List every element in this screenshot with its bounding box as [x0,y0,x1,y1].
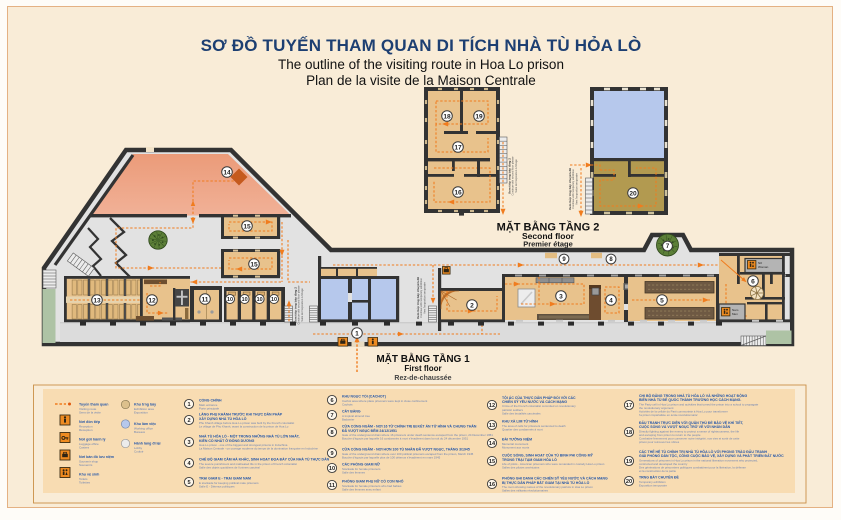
svg-text:Hành lang đi lại: Hành lang đi lại [134,442,161,446]
svg-text:Xem tiếp trng bày chuyên đề: Xem tiếp trng bày chuyên đề [416,277,420,319]
svg-text:Salle des femmes avec enfant: Salle des femmes avec enfant [342,488,381,492]
svg-text:2: 2 [470,302,474,309]
svg-text:16: 16 [489,482,495,488]
svg-text:The outline of the visiting ro: The outline of the visiting route in Hoa… [278,57,564,72]
svg-text:12: 12 [148,297,156,304]
svg-text:Nơi gửi hành lý: Nơi gửi hành lý [79,438,106,442]
svg-text:Rez-de-chaussée: Rez-de-chaussée [394,375,451,382]
svg-text:19: 19 [475,113,483,120]
svg-text:Tuyến tham quan: Tuyến tham quan [79,403,108,407]
svg-text:'la prison impérialiste en éco: 'la prison impérialiste en école révolut… [639,413,698,417]
svg-text:SƠ ĐỒ TUYẾN THAM QUAN DI TÍCH: SƠ ĐỒ TUYẾN THAM QUAN DI TÍCH NHÀ TÙ HỎA… [201,36,642,55]
svg-text:17: 17 [626,403,632,409]
svg-text:La Maison Centrale - un ouvrag: La Maison Centrale - un ouvrage moderne … [199,447,318,451]
svg-text:Quartier des condamnés à mort: Quartier des condamnés à mort [502,428,543,432]
svg-text:17: 17 [454,144,462,151]
svg-text:4: 4 [609,297,613,304]
svg-text:Badamier: Badamier [342,418,354,422]
svg-text:3: 3 [559,293,563,300]
svg-text:Salles des pilotes américains: Salles des pilotes américains [502,466,540,470]
svg-text:13: 13 [489,423,495,429]
svg-text:Salle des brutalités carcérale: Salle des brutalités carcérales [502,411,541,415]
svg-text:Toilettes: Toilettes [79,481,91,485]
svg-text:Cachots: Cachots [342,403,353,407]
svg-text:Bureaux: Bureaux [134,430,146,434]
svg-text:15: 15 [243,223,251,230]
svg-text:Nơi bán đồ lưu niệm: Nơi bán đồ lưu niệm [79,455,114,459]
svg-text:First floor: First floor [404,364,441,373]
svg-text:et la construction de la patri: et la construction de la patrie [639,469,676,473]
svg-text:Salle des femmes: Salle des femmes [342,471,366,475]
svg-text:Sens de la visite: Sens de la visite [79,411,101,415]
svg-text:Salles des militants révolutio: Salles des militants révolutionnaires [502,489,549,493]
svg-text:Suite de l'exposition à l'étag: Suite de l'exposition à l'étage [300,288,304,322]
svg-text:Couloir: Couloir [134,450,144,454]
svg-text:9: 9 [330,451,333,457]
svg-text:Exposition temporaire: Exposition temporaire [639,484,667,488]
svg-text:Bouche d'égouts par laquelle p: Bouche d'égouts par laquelle plus de 100… [342,456,441,460]
svg-text:10: 10 [257,297,263,303]
svg-text:10: 10 [242,297,248,303]
svg-text:Bouche d'égouts par laquelle 1: Bouche d'égouts par laquelle 16 condamné… [342,437,469,441]
svg-text:Réception: Réception [79,428,93,432]
svg-text:6: 6 [751,278,755,285]
svg-text:Monument aux morts: Monument aux morts [502,446,530,450]
svg-text:Le village de Phu Khanh, avant: Le village de Phu Khanh, avant la constr… [199,425,289,429]
svg-text:18: 18 [626,430,632,436]
svg-text:Premier étage: Premier étage [523,240,573,249]
svg-text:14: 14 [223,169,231,176]
svg-text:10: 10 [329,466,335,472]
svg-text:Khu vệ sinh: Khu vệ sinh [79,473,99,477]
svg-text:Cachot area where place prison: Cachot area where place prisoners were k… [342,399,428,403]
svg-text:2: 2 [187,418,190,424]
svg-text:15: 15 [250,261,258,268]
svg-text:Men: Men [732,312,738,316]
svg-text:Xem tiếp trng bày tầng 2: Xem tiếp trng bày tầng 2 [507,158,511,194]
svg-text:3: 3 [187,440,190,446]
svg-text:Xem tiếp trng bày chuyên đề: Xem tiếp trng bày chuyên đề [568,168,572,210]
svg-text:20: 20 [626,479,632,485]
svg-text:Khu làm việc: Khu làm việc [134,422,156,426]
svg-text:Souvenirs: Souvenirs [79,463,93,467]
svg-text:1: 1 [187,402,190,408]
svg-text:16: 16 [454,189,462,196]
svg-text:13: 13 [93,297,101,304]
svg-text:12: 12 [489,403,495,409]
svg-text:15: 15 [489,459,495,465]
svg-text:5: 5 [660,297,664,304]
svg-text:Exposition: Exposition [134,411,148,415]
svg-text:Xem tiếp trng bày tầng 2: Xem tiếp trng bày tầng 2 [293,287,297,323]
svg-text:Salle E - Détenus politiques: Salle E - Détenus politiques [199,485,235,489]
svg-text:20: 20 [629,190,637,197]
svg-text:Suite de l'exposition à l'étag: Suite de l'exposition à l'étage [514,159,518,193]
svg-text:Vers l'exposition temporaire: Vers l'exposition temporaire [422,282,426,314]
svg-text:11: 11 [202,296,209,303]
svg-text:Porte principale: Porte principale [199,407,219,411]
svg-text:5: 5 [187,480,190,486]
svg-text:6: 6 [330,398,333,404]
svg-text:Vers l'exposition temporaire: Vers l'exposition temporaire [574,173,578,205]
svg-text:Khu trng bày: Khu trng bày [134,403,156,407]
svg-text:Plan de la visite de la Maison: Plan de la visite de la Maison Centrale [306,73,536,88]
svg-text:14: 14 [489,441,496,447]
svg-text:1: 1 [355,330,359,337]
svg-text:10: 10 [271,297,277,303]
svg-text:Nơi đón tiếp: Nơi đón tiếp [79,420,101,424]
svg-text:18: 18 [443,113,451,120]
svg-text:Casiers: Casiers [79,446,90,450]
svg-text:Woman: Woman [758,265,769,269]
svg-text:Salle des objets quotidiens de: Salle des objets quotidiens de l'univers… [199,466,260,470]
svg-text:7: 7 [330,413,333,419]
svg-text:10: 10 [227,297,233,303]
svg-text:8: 8 [330,430,333,436]
svg-text:19: 19 [626,459,632,465]
svg-text:11: 11 [329,483,335,489]
svg-text:prison pour retrouver les nôtr: prison pour retrouver les nôtres [639,440,680,444]
